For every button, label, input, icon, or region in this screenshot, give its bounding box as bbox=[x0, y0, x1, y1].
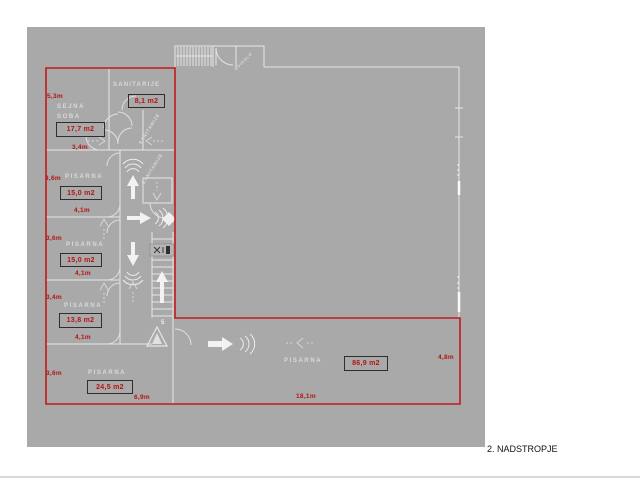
room-label-sanitarije: SANITARIJE bbox=[113, 82, 160, 89]
bottom-divider bbox=[0, 476, 640, 478]
hall-right-arrow bbox=[208, 337, 233, 351]
room-label-pisarna-5: PISARNA bbox=[284, 358, 322, 365]
dim-pisarna-2-bottom: 4,1m bbox=[75, 270, 91, 277]
room-label-pisarna-4: PISARNA bbox=[88, 370, 126, 377]
dim-sejna-bottom: 3,4m bbox=[72, 144, 88, 151]
dim-sejna-left: 5,3m bbox=[47, 93, 63, 100]
dim-pisarna-2-left: 3,6m bbox=[46, 235, 62, 242]
dashed-guides bbox=[88, 137, 314, 348]
area-box-sanitarije: 8,1 m2 bbox=[128, 94, 165, 108]
dim-pisarna-4-left: 3,6m bbox=[46, 370, 62, 377]
room-label-soba: SOBA bbox=[57, 114, 81, 121]
main-staircase bbox=[150, 232, 174, 318]
dim-pisarna-5-right: 4,8m bbox=[438, 354, 454, 361]
area-box-sejna-soba: 17,7 m2 bbox=[56, 122, 105, 137]
floorplan-svg bbox=[0, 0, 640, 480]
dim-pisarna-1-bottom: 4,1m bbox=[74, 207, 90, 214]
room-label-pisarna-2: PISARNA bbox=[66, 242, 104, 249]
stairwell-sign bbox=[150, 244, 174, 256]
corridor-down-arrow bbox=[127, 242, 139, 266]
room-label-pisarna-3: PISARNA bbox=[64, 303, 102, 310]
area-box-pisarna-2: 15,0 m2 bbox=[60, 253, 102, 267]
corridor-up-arrow bbox=[127, 175, 139, 199]
area-box-pisarna-1: 15,0 m2 bbox=[60, 186, 102, 200]
dim-pisarna-5-bottom: 18,1m bbox=[296, 393, 316, 400]
room-label-sejna: SEJNA bbox=[57, 104, 85, 111]
section-marker-triangle bbox=[147, 327, 167, 346]
area-box-pisarna-3: 13,8 m2 bbox=[59, 313, 102, 328]
dim-pisarna-3-left: 3,4m bbox=[46, 294, 62, 301]
dim-pisarna-1-left: 3,6m bbox=[45, 175, 61, 182]
section-marker-number: 5 bbox=[161, 320, 164, 326]
floor-title: 2. NADSTROPJE bbox=[487, 444, 558, 454]
room-label-pisarna-1: PISARNA bbox=[65, 174, 103, 181]
exit-diamond-icon bbox=[162, 212, 176, 226]
corridor-right-arrow bbox=[127, 212, 151, 224]
dim-pisarna-4-bottom: 6,9m bbox=[134, 394, 150, 401]
dim-pisarna-3-bottom: 4,1m bbox=[75, 334, 91, 341]
area-box-pisarna-5: 86,9 m2 bbox=[344, 356, 388, 371]
area-box-pisarna-4: 24,5 m2 bbox=[87, 380, 133, 394]
stairs-up-arrow bbox=[156, 271, 168, 303]
elevator-door-arc bbox=[216, 48, 233, 65]
